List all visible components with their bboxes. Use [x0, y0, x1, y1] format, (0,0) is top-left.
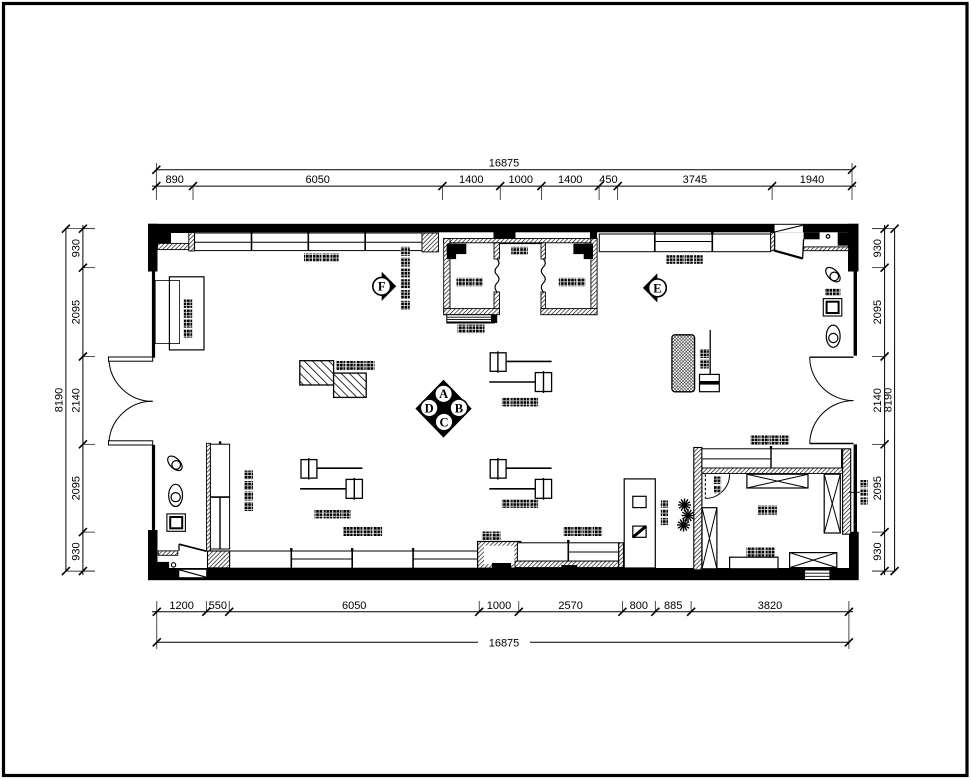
svg-text:3820: 3820 — [758, 600, 782, 612]
svg-text:2140: 2140 — [71, 388, 83, 412]
svg-text:D: D — [425, 401, 434, 415]
svg-text:930: 930 — [872, 542, 884, 560]
svg-text:16875: 16875 — [489, 638, 520, 650]
svg-text:3745: 3745 — [683, 174, 707, 186]
svg-text:2095: 2095 — [71, 476, 83, 500]
svg-text:1000: 1000 — [487, 600, 511, 612]
svg-text:C: C — [439, 415, 448, 429]
svg-text:1000: 1000 — [509, 174, 533, 186]
svg-text:930: 930 — [71, 239, 83, 257]
svg-text:1400: 1400 — [558, 174, 582, 186]
svg-text:1200: 1200 — [169, 600, 193, 612]
svg-text:B: B — [455, 401, 463, 415]
svg-text:885: 885 — [664, 600, 682, 612]
svg-text:6050: 6050 — [342, 600, 366, 612]
svg-text:6050: 6050 — [305, 174, 329, 186]
svg-text:1400: 1400 — [459, 174, 483, 186]
svg-text:800: 800 — [630, 600, 648, 612]
svg-text:930: 930 — [872, 239, 884, 257]
svg-text:450: 450 — [599, 174, 617, 186]
svg-text:2095: 2095 — [71, 300, 83, 324]
svg-text:2570: 2570 — [558, 600, 582, 612]
svg-text:890: 890 — [166, 174, 184, 186]
svg-text:E: E — [653, 281, 661, 295]
svg-text:1940: 1940 — [800, 174, 824, 186]
svg-text:2095: 2095 — [872, 300, 884, 324]
svg-text:930: 930 — [71, 542, 83, 560]
svg-text:A: A — [439, 387, 448, 401]
svg-text:550: 550 — [209, 600, 227, 612]
svg-text:F: F — [378, 280, 386, 294]
svg-text:16875: 16875 — [489, 158, 520, 170]
svg-text:8190: 8190 — [882, 388, 894, 412]
svg-text:2095: 2095 — [872, 476, 884, 500]
svg-text:8190: 8190 — [54, 388, 66, 412]
